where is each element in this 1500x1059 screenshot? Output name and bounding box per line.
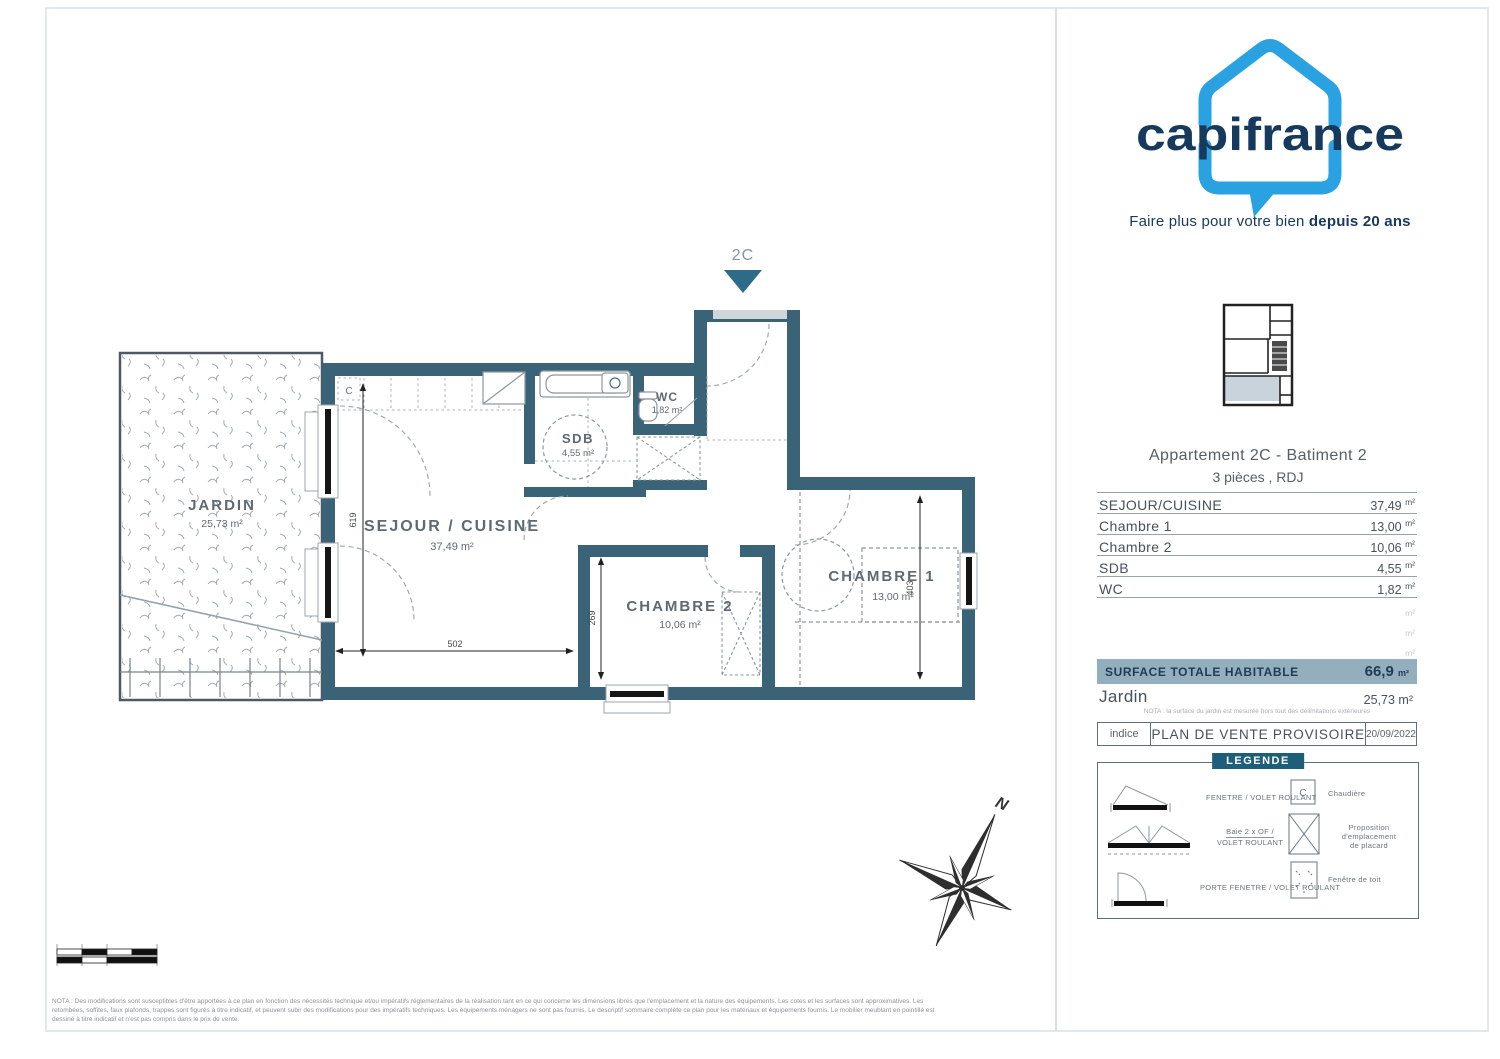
table-row: Chambre 1 13,00 m² [1097,514,1417,535]
revision-date: 20/09/2022 [1366,723,1416,745]
sdb-area: 4,55 m² [562,448,594,459]
legend-porte-fenetre-icon [1110,861,1172,907]
apartment-title: Appartement 2C - Batiment 2 [1078,447,1438,465]
scale-bar [57,944,157,966]
chambre1-name: CHAMBRE 1 [828,568,935,585]
table-empty-row: m² [1097,638,1417,658]
surface-total-label: SURFACE TOTALE HABITABLE [1105,665,1299,679]
legend-placard-label: Proposition d'emplacement de placard [1326,823,1412,850]
table-row: SDB 4,55 m² [1097,556,1417,577]
legend-baie-icon [1104,819,1196,857]
revision-indice: indice [1098,723,1151,745]
table-empty-row: m² [1097,618,1417,638]
sejour-area: 37,49 m² [430,541,474,553]
key-plan-highlight [1225,376,1280,401]
legend-box: LEGENDE FENETRE / VOLET ROULANT Baie 2 x… [1097,762,1419,919]
tagline-text: Faire plus pour votre bien [1129,213,1304,230]
jardin-label: Jardin [1099,687,1148,707]
surface-total-value: 66,9 m² [1365,663,1409,680]
jardin-name: JARDIN [188,497,256,514]
chambre2-area: 10,06 m² [659,619,701,631]
table-row: Chambre 2 10,06 m² [1097,535,1417,556]
jardin-value: 25,73 m² [1364,693,1413,707]
sdb-name: SDB [562,431,594,446]
legend-porte-fenetre-label: PORTE FENETRE / VOLET ROULANT [1200,883,1340,892]
chambre2-name: CHAMBRE 2 [626,598,733,615]
footer-note: NOTA : Des modifications sont susceptibl… [52,998,940,1024]
wc-name: WC [656,390,678,404]
legend-placard-icon [1288,813,1320,855]
key-plan [1222,303,1294,413]
entrance-marker: 2C [724,247,762,293]
apartment-walls [322,310,975,700]
legend-window-icon [1110,781,1176,813]
svg-text:269: 269 [587,610,597,625]
compass-rose-icon: N [874,768,1053,968]
svg-text:619: 619 [348,512,358,527]
brand-name: capifrance [1136,108,1404,160]
entrance-arrow-icon [724,270,762,293]
revision-bar: indice PLAN DE VENTE PROVISOIRE 20/09/20… [1097,722,1417,746]
surface-total-bar: SURFACE TOTALE HABITABLE 66,9 m² [1097,659,1417,684]
wc-area: 1,82 m² [652,405,683,415]
brand-tagline: Faire plus pour votre bien depuis 20 ans [1080,213,1460,230]
apartment-subtitle: 3 pièces , RDJ [1078,469,1438,485]
capifrance-logo: capifrance [1130,28,1410,223]
tagline-bold: depuis 20 ans [1309,213,1411,230]
plan-sheet: C [0,0,1500,1059]
svg-text:C: C [1299,788,1306,799]
legend-chaudiere-icon: C [1290,779,1316,805]
table-row: WC 1,82 m² [1097,577,1417,598]
fixtures [483,371,960,685]
legend-fenetre-toit-icon [1290,861,1318,899]
legend-baie-label: Baie 2 x OF / VOLET ROULANT [1202,827,1298,847]
sejour-name: SEJOUR / CUISINE [364,518,540,535]
legend-chaudiere-label: Chaudière [1328,789,1365,798]
legend-title: LEGENDE [1212,753,1304,769]
chambre1-area: 13,00 m² [872,591,914,603]
chaudiere-label: C [345,386,352,397]
table-empty-row: m² [1097,598,1417,618]
surface-table: SEJOUR/CUISINE 37,49 m² Chambre 1 13,00 … [1097,492,1417,658]
svg-text:502: 502 [447,639,462,649]
table-row: SEJOUR/CUISINE 37,49 m² [1097,493,1417,514]
compass-north-label: N [993,794,1011,814]
entrance-label: 2C [732,247,754,264]
key-plan-stairs [1272,341,1287,371]
jardin-row: Jardin 25,73 m² [1097,687,1417,707]
legend-fenetre-toit-label: Fenêtre de toit [1328,875,1381,884]
revision-title: PLAN DE VENTE PROVISOIRE [1151,723,1366,745]
jardin-note: NOTA : la surface du jardin est mesurée … [1097,708,1417,715]
jardin-area: 25,73 m² [201,518,243,530]
